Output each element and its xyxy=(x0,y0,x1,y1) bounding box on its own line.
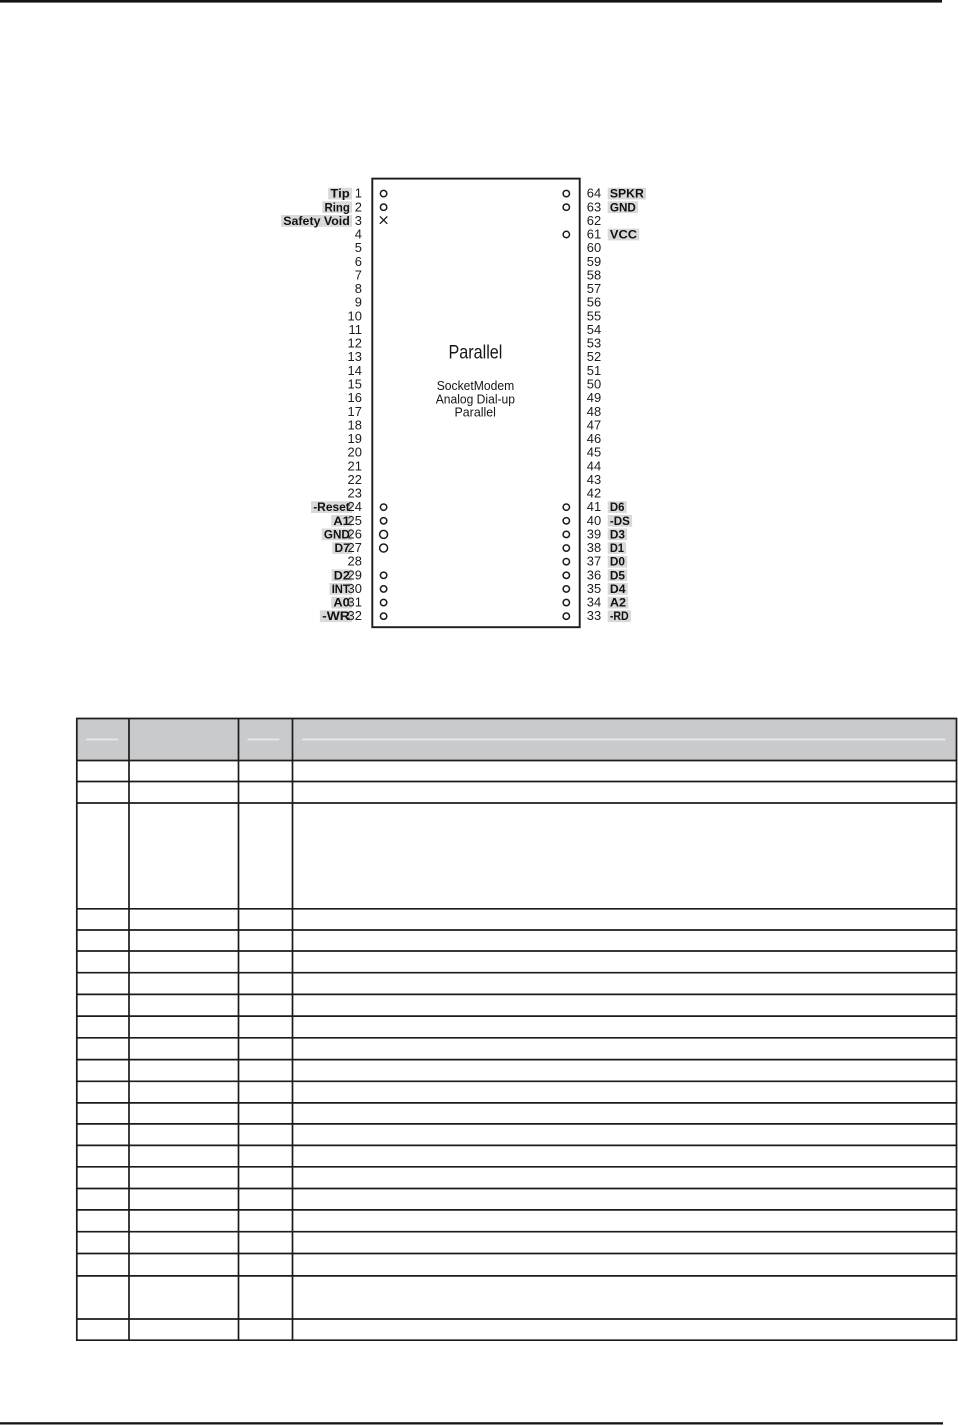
svg-text:32: 32 xyxy=(348,608,362,623)
svg-text:D6: D6 xyxy=(610,500,625,514)
svg-text:33: 33 xyxy=(587,608,601,623)
svg-text:Analog Dial-up: Analog Dial-up xyxy=(436,393,515,407)
svg-text:GND: GND xyxy=(324,527,350,541)
svg-text:-DS: -DS xyxy=(610,514,630,528)
svg-text:Ring: Ring xyxy=(325,200,350,214)
svg-text:SocketModem: SocketModem xyxy=(437,379,515,393)
svg-text:-RD: -RD xyxy=(610,609,629,623)
svg-text:D4: D4 xyxy=(610,582,626,596)
svg-text:D5: D5 xyxy=(610,568,625,582)
svg-text:-Reset: -Reset xyxy=(313,500,350,514)
svg-text:GND: GND xyxy=(610,200,636,214)
svg-text:D3: D3 xyxy=(610,527,625,541)
svg-text:D0: D0 xyxy=(610,555,625,569)
svg-text:Safety Void: Safety Void xyxy=(283,214,350,228)
svg-text:Parallel: Parallel xyxy=(449,342,503,364)
svg-text:A2: A2 xyxy=(610,596,627,610)
svg-text:D1: D1 xyxy=(610,541,624,555)
svg-text:Parallel: Parallel xyxy=(455,406,496,420)
svg-text:Tip: Tip xyxy=(330,187,349,201)
svg-text:VCC: VCC xyxy=(610,228,638,242)
svg-text:-WR: -WR xyxy=(322,609,350,623)
svg-text:SPKR: SPKR xyxy=(610,187,644,201)
